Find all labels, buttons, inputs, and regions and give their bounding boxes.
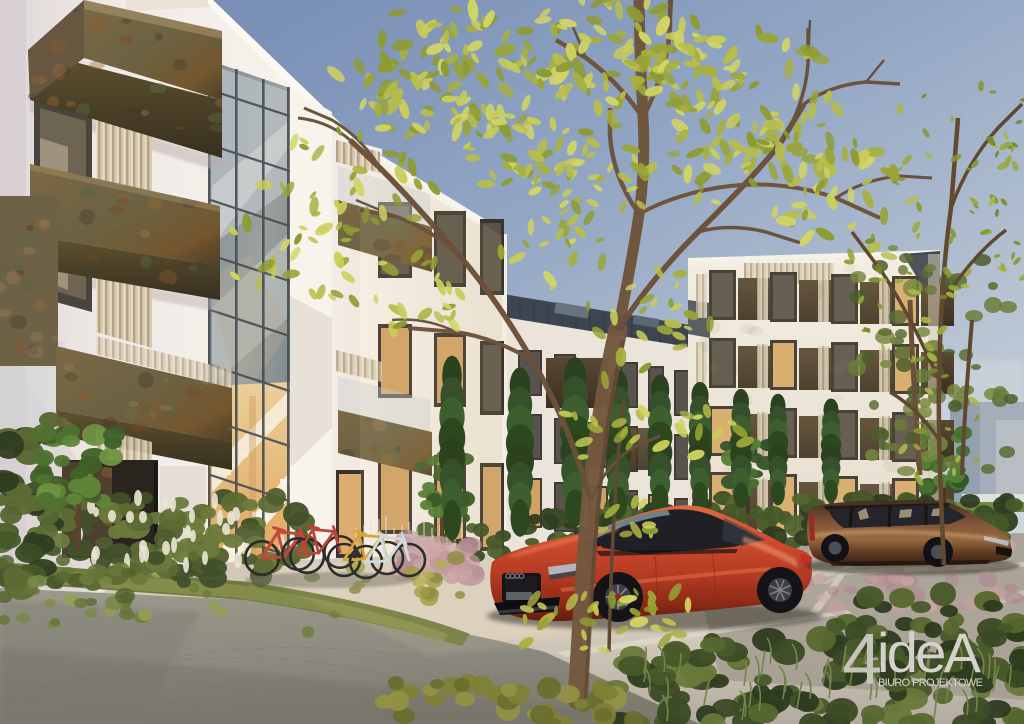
svg-text:BIURO PROJEKTOWE: BIURO PROJEKTOWE — [878, 677, 984, 689]
svg-text:ideA: ideA — [877, 621, 982, 684]
